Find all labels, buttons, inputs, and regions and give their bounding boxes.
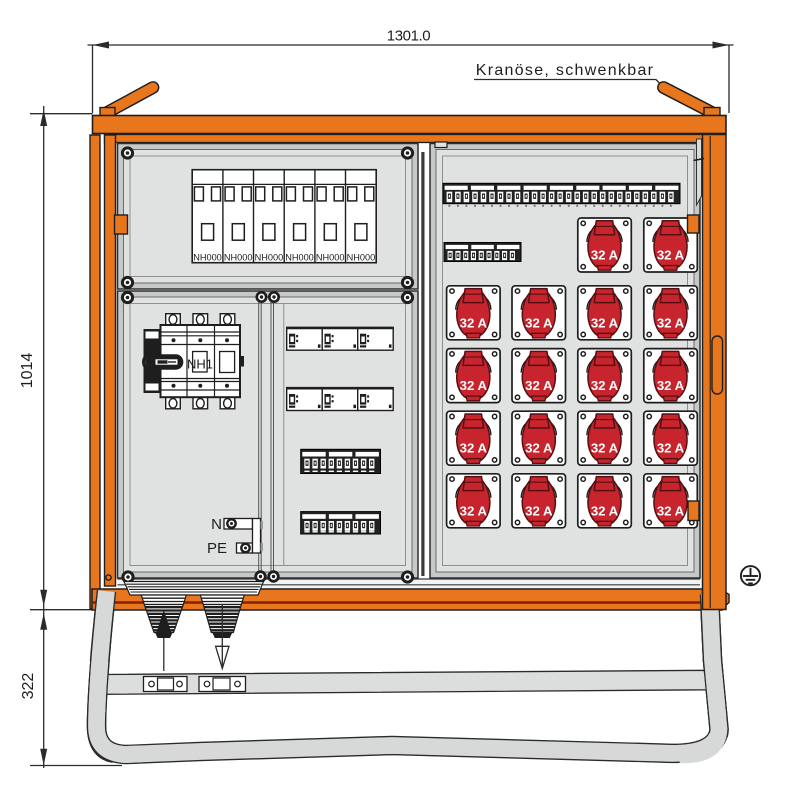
svg-text:32 A: 32 A (460, 378, 488, 393)
svg-text:NH000: NH000 (285, 253, 314, 263)
svg-text:32 A: 32 A (460, 441, 488, 456)
svg-text:PE: PE (207, 540, 227, 557)
svg-text:32 A: 32 A (460, 503, 488, 518)
svg-text:NH000: NH000 (316, 253, 345, 263)
svg-text:N: N (211, 516, 222, 533)
svg-text:Kranöse, schwenkbar: Kranöse, schwenkbar (476, 62, 655, 79)
svg-text:322: 322 (20, 673, 37, 700)
svg-text:NH000: NH000 (255, 253, 284, 263)
svg-text:NH000: NH000 (193, 253, 222, 263)
svg-text:32 A: 32 A (657, 248, 685, 263)
svg-text:32 A: 32 A (657, 503, 685, 518)
svg-text:32 A: 32 A (525, 441, 553, 456)
svg-text:32 A: 32 A (591, 503, 619, 518)
svg-text:32 A: 32 A (525, 503, 553, 518)
svg-text:NH000: NH000 (224, 253, 253, 263)
svg-text:1301.0: 1301.0 (387, 28, 431, 45)
svg-text:32 A: 32 A (591, 315, 619, 330)
svg-text:32 A: 32 A (591, 248, 619, 263)
svg-text:32 A: 32 A (525, 378, 553, 393)
svg-text:32 A: 32 A (460, 315, 488, 330)
svg-text:32 A: 32 A (657, 378, 685, 393)
svg-text:32 A: 32 A (525, 315, 553, 330)
svg-text:32 A: 32 A (591, 378, 619, 393)
svg-text:NH000: NH000 (347, 253, 376, 263)
svg-text:1014: 1014 (19, 353, 36, 389)
svg-text:32 A: 32 A (657, 441, 685, 456)
svg-text:NH1: NH1 (187, 357, 213, 372)
svg-text:32 A: 32 A (657, 315, 685, 330)
svg-text:32 A: 32 A (591, 441, 619, 456)
